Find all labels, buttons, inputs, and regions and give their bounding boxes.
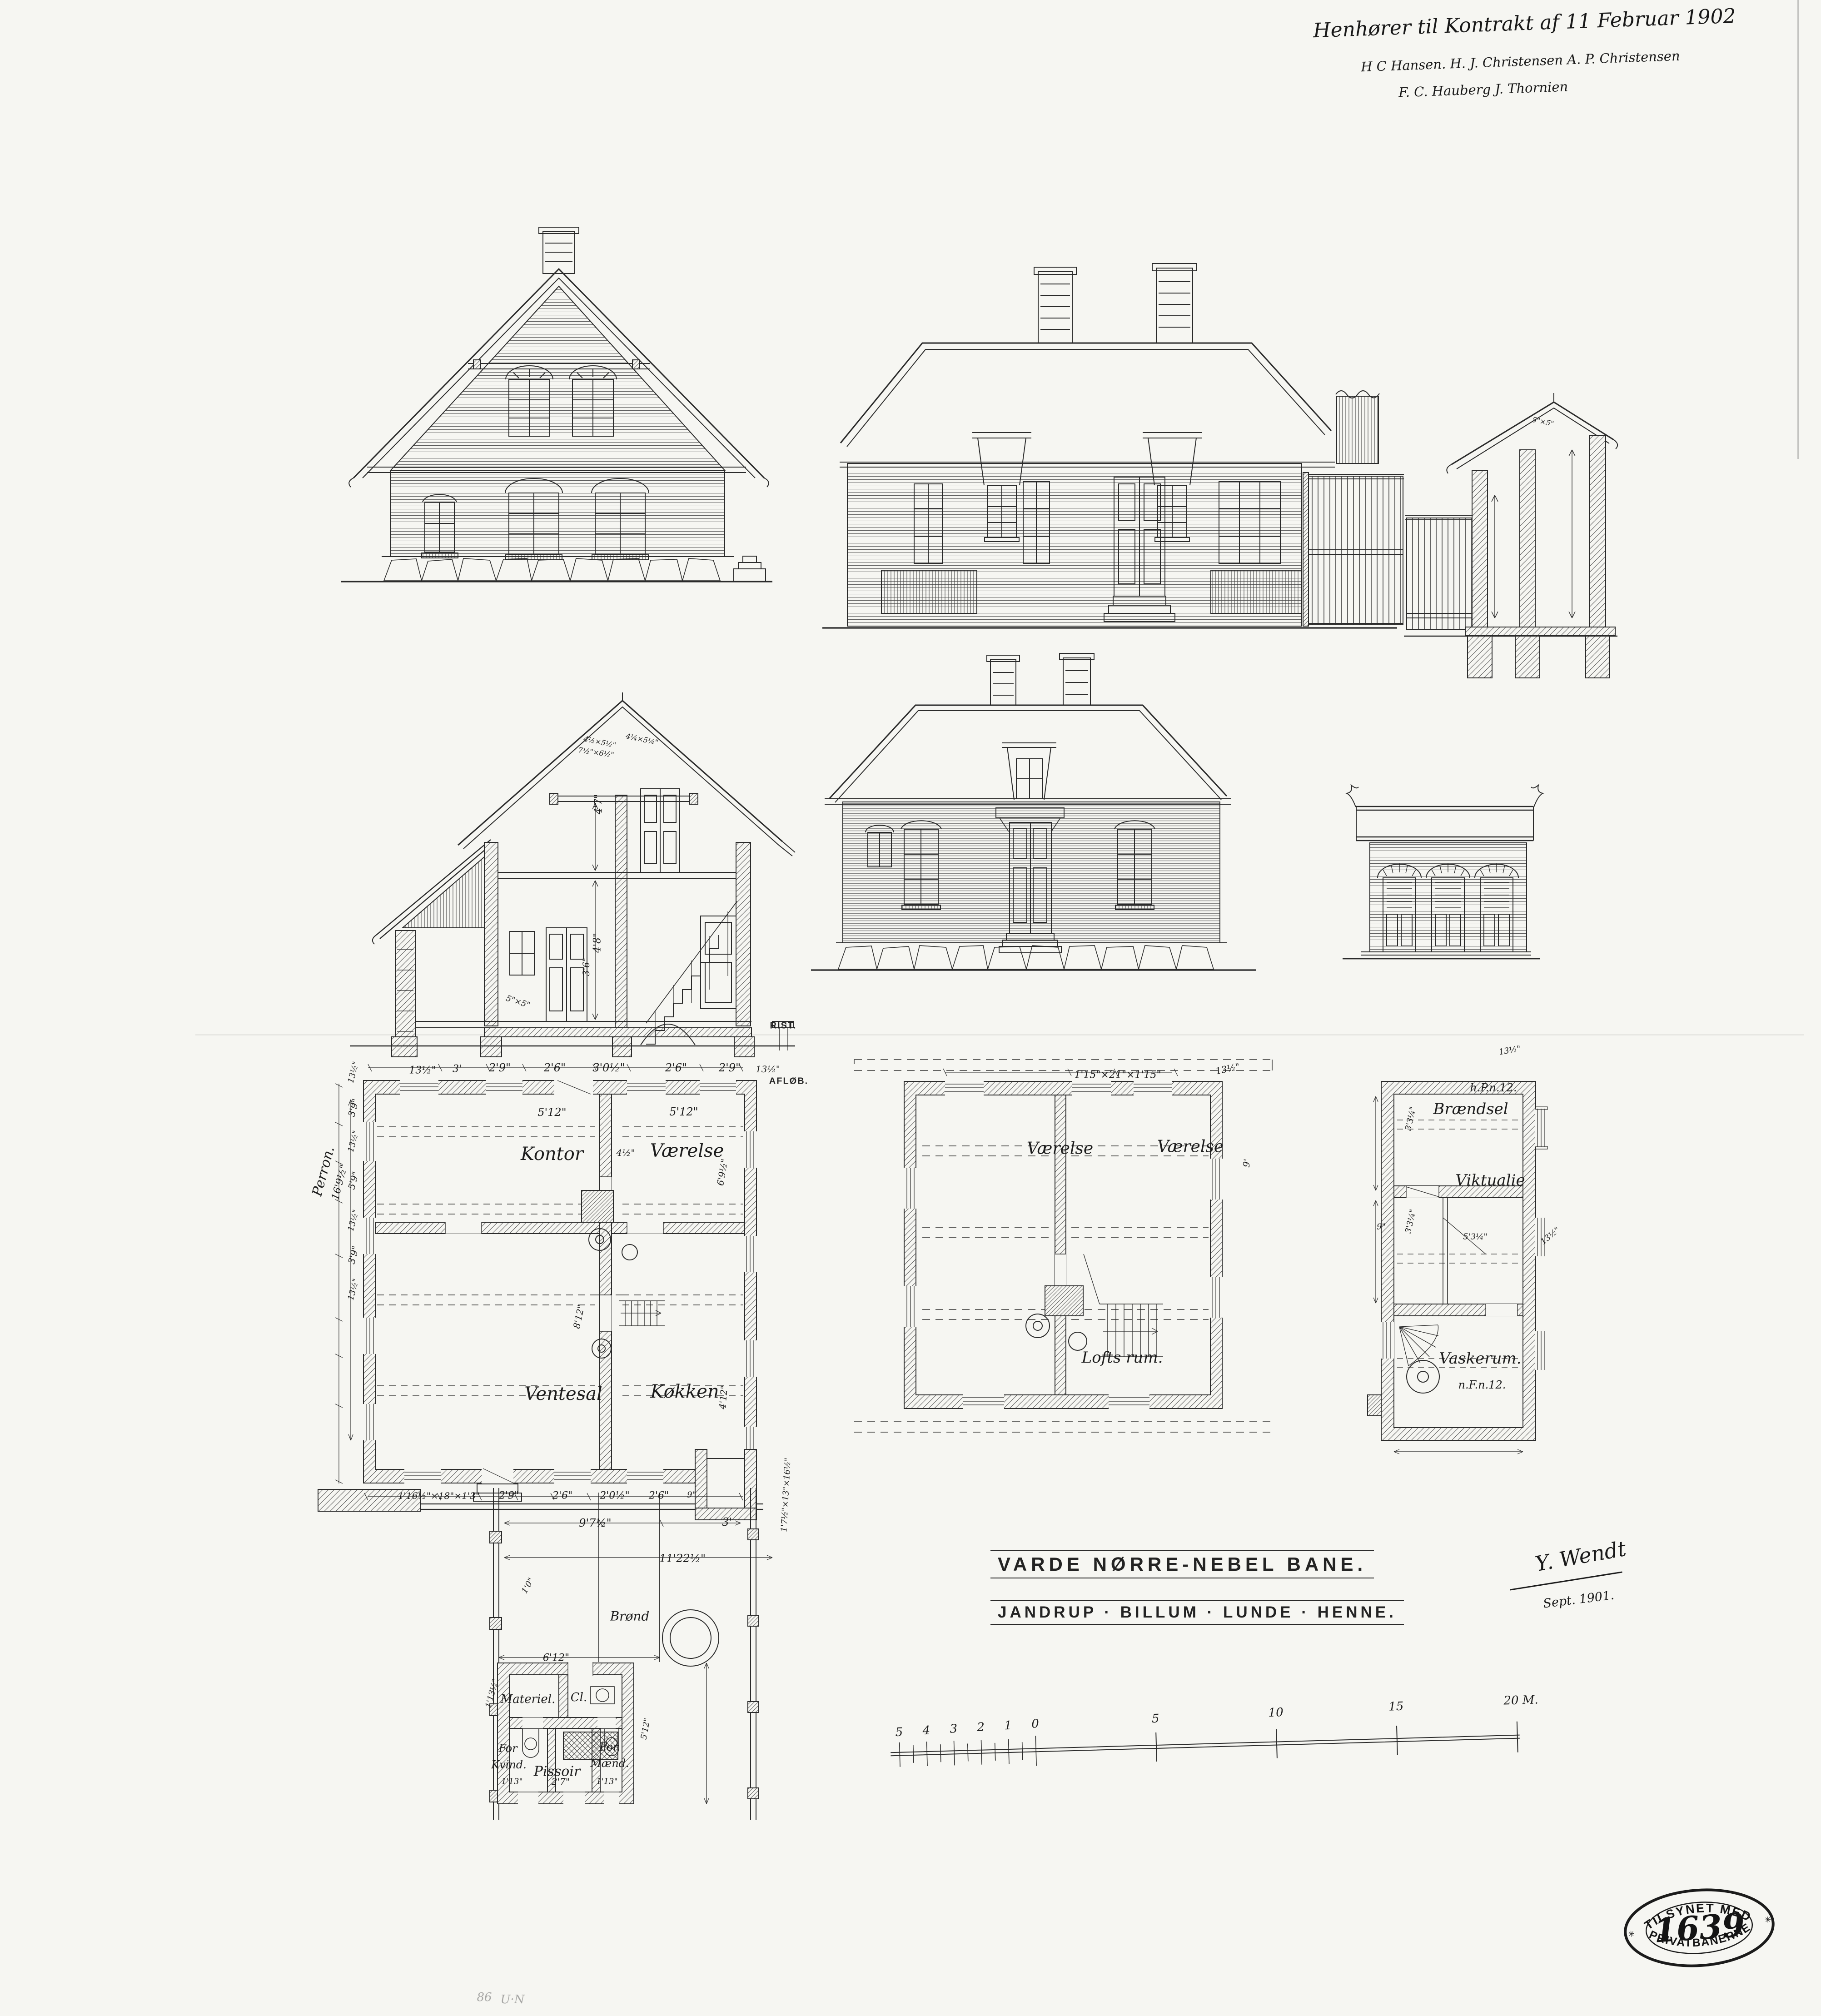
dim: 3': [453, 1064, 462, 1075]
dim: 2'7": [552, 1776, 570, 1787]
labels-layer: KontorVærelseVentesalKøkkenVærelseVærels…: [0, 0, 1821, 2016]
dim: 9'7½": [579, 1517, 611, 1529]
dim: 3'3¼": [1403, 1209, 1418, 1234]
dim: 13½": [346, 1060, 361, 1084]
dim: 4'12": [717, 1385, 730, 1410]
dim: 1'7½"×13"×16½": [779, 1458, 793, 1532]
room-label-viktualie: Viktualie: [1455, 1171, 1525, 1190]
room-label-materiel: Materiel.: [501, 1692, 556, 1706]
dim: 5'12": [639, 1717, 652, 1741]
dim: 11'22½": [659, 1552, 706, 1565]
label-rist: RIST.: [770, 1021, 797, 1031]
dim: 4'7": [593, 794, 605, 814]
dim: 2'9": [719, 1061, 741, 1074]
room-label-vaerelse-ff-2: Værelse: [1157, 1138, 1224, 1156]
dim: 13½": [346, 1209, 361, 1232]
dim: 13½": [1539, 1225, 1562, 1246]
note-nfn12: n.F.n.12.: [1458, 1379, 1506, 1391]
dim: 6'9½": [715, 1158, 730, 1187]
dim: 3'9": [346, 1245, 361, 1265]
dim: 2'9": [499, 1490, 519, 1502]
room-label-vaskerum: Vaskerum.: [1439, 1349, 1521, 1368]
dim: 3'6": [581, 958, 592, 976]
room-label-cl: Cl.: [571, 1691, 587, 1704]
dim: 1'15"×21"×1'15": [1074, 1070, 1161, 1081]
dim: 4'8": [592, 933, 603, 953]
dim: 4¼×5¼": [625, 732, 659, 747]
dim: 5'12": [669, 1105, 698, 1118]
pencil-mark: 86: [477, 1991, 492, 2004]
room-label-loftsrum: Lofts rum.: [1082, 1349, 1163, 1367]
room-label-vaerelse-ff-1: Værelse: [1027, 1140, 1093, 1158]
dim: 13½": [346, 1130, 361, 1153]
room-label-for-kvind-2: Kvind.: [491, 1758, 527, 1771]
dim: 3'9": [346, 1098, 361, 1118]
note-hpn12: h.P.n.12.: [1470, 1081, 1517, 1094]
dim: 5'3¼": [1463, 1232, 1488, 1242]
room-label-braendsel: Brændsel: [1433, 1100, 1508, 1118]
dim: 13½": [409, 1065, 436, 1076]
dim: 3'3¼": [1403, 1106, 1418, 1132]
dim: 1'16½"×18"×1'3": [398, 1490, 480, 1501]
pencil-mark: U·N: [501, 1993, 525, 2006]
dim: 5"×5": [505, 994, 531, 1010]
dim: 2'0½": [600, 1490, 629, 1502]
dim: 2'6": [552, 1490, 572, 1502]
dim: 3'0½": [592, 1061, 625, 1074]
dim: 1'0": [520, 1576, 536, 1595]
dim: 9": [1377, 1222, 1386, 1232]
dim: 2'6": [544, 1061, 566, 1074]
dim: 1'13": [501, 1777, 523, 1787]
dim: 2'6": [665, 1061, 687, 1074]
well-label: Brønd: [610, 1609, 650, 1624]
dim: 4½": [616, 1147, 635, 1158]
room-label-for-maend-1: For: [599, 1741, 618, 1753]
dim: 9": [687, 1490, 696, 1500]
room-label-ventesal: Ventesal: [524, 1384, 602, 1404]
drawing-sheet: 5 4 3 2 1 0 5 10 15 20 M. TILSYNET MED: [0, 0, 1821, 2016]
dim: 5'12": [537, 1106, 566, 1119]
room-label-vaerelse-gf: Værelse: [650, 1140, 724, 1161]
dim: 2'9": [489, 1061, 511, 1074]
room-label-for-maend-2: Mænd.: [590, 1757, 629, 1770]
room-label-for-kvind-1: For: [498, 1742, 517, 1755]
label-afloeb: AFLØB.: [769, 1076, 808, 1087]
dim: 5'9": [346, 1170, 361, 1191]
dim: 6'12": [543, 1653, 569, 1664]
dim: 13½": [346, 1278, 361, 1301]
dim: 5"×5": [1531, 415, 1554, 428]
dim: 2'6": [649, 1490, 669, 1502]
dim: 8'12": [571, 1304, 587, 1330]
dim: 13½": [1214, 1061, 1241, 1077]
dim: 13½": [1498, 1044, 1522, 1057]
dim: 9': [1241, 1158, 1253, 1168]
dim: 1'13½": [483, 1678, 500, 1709]
dim: 13½": [756, 1064, 780, 1075]
room-label-koekken: Køkken: [650, 1381, 719, 1402]
room-label-kontor: Kontor: [521, 1144, 583, 1165]
dim: 3': [722, 1516, 732, 1528]
dim: 1'13": [596, 1777, 618, 1787]
